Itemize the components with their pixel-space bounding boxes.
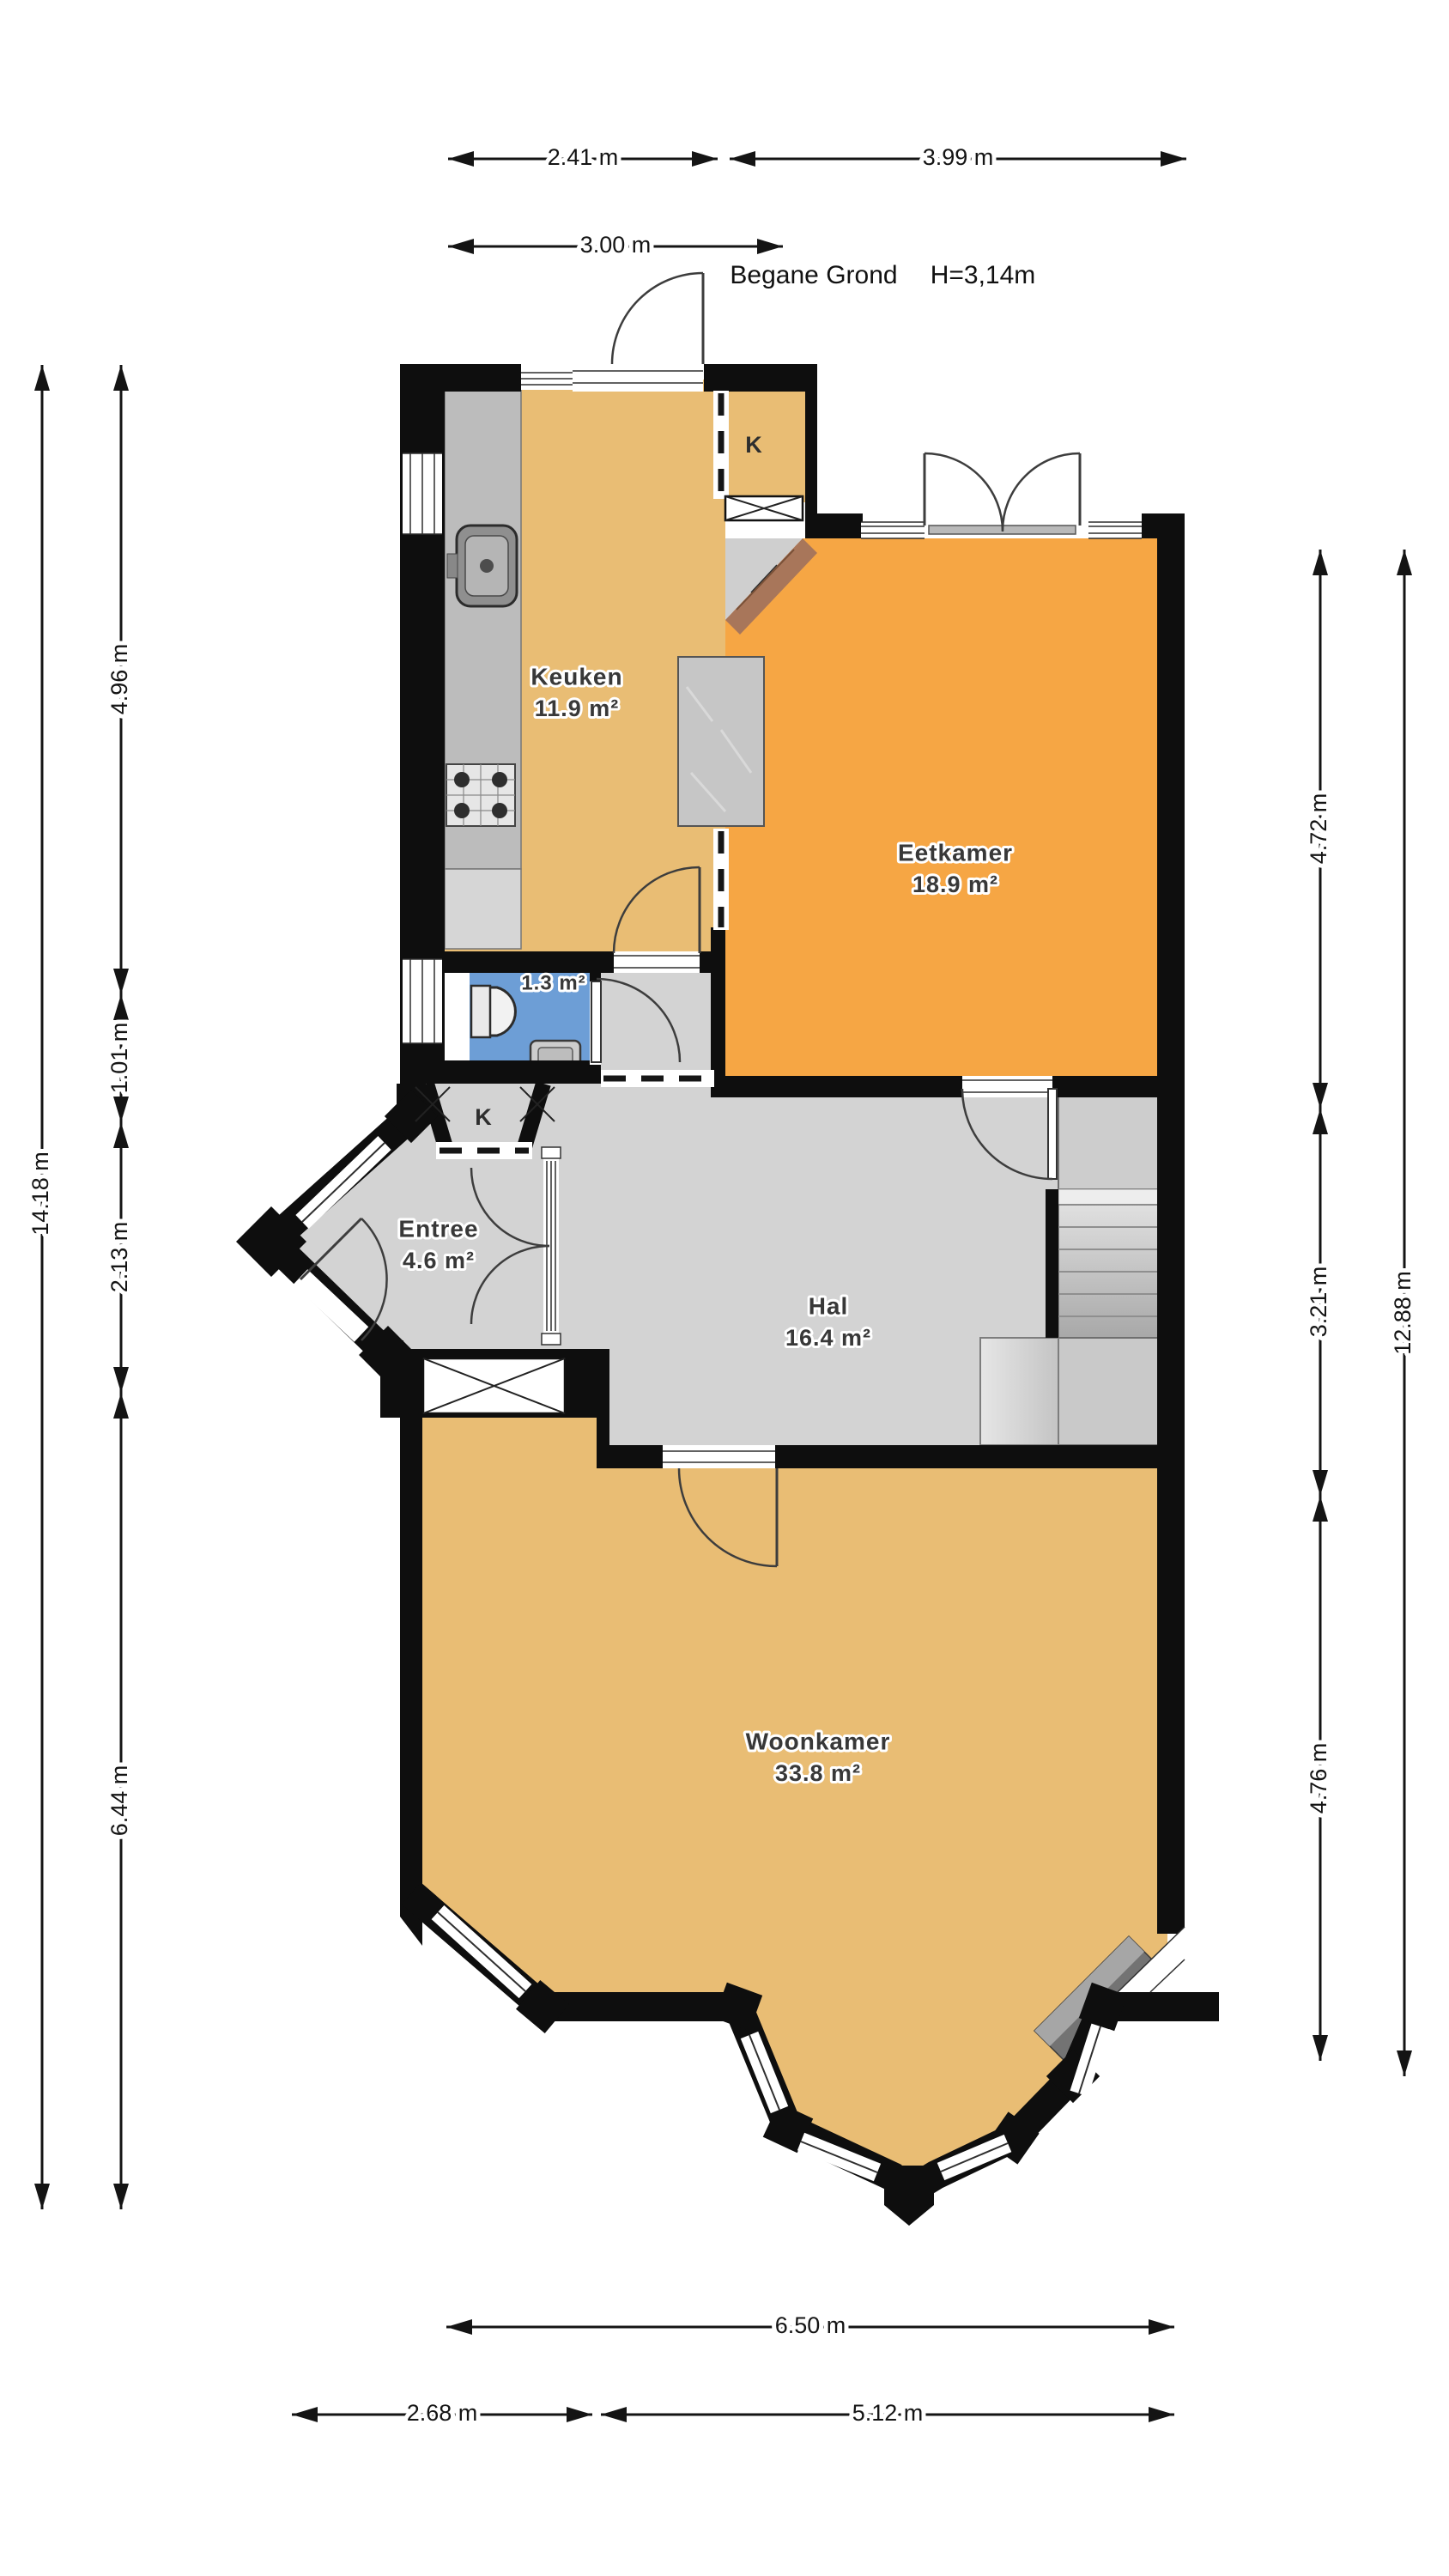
dim-label: 3.21 m [1306,1267,1331,1338]
wall [445,1060,601,1084]
sink-drain [480,559,494,573]
dim-label: 2.68 m [407,2400,478,2426]
wall-stair [1046,1189,1058,1338]
room-label-hal: Hal [809,1292,849,1319]
wall [704,364,817,392]
dim-label: 4.96 m [106,644,132,715]
stair-first-tread [1058,1189,1167,1205]
room-area-eetkamer: 18.9 m² [912,872,998,897]
french-door-arc [1003,453,1080,531]
wall-right [1157,513,1185,1934]
room-area-woonkamer: 33.8 m² [775,1760,861,1786]
burner [492,803,507,818]
room-label-eetkamer: Eetkamer [898,839,1013,866]
kast-keuken-floor [725,388,805,502]
dim-label: 2.13 m [106,1222,132,1293]
dim-label: 1.01 m [106,1023,132,1094]
room-area-hal: 16.4 m² [785,1325,871,1351]
room-label-keuken: Keuken [530,663,622,690]
window-eetkamer-left [861,522,925,538]
dim-label: 6.50 m [775,2312,846,2338]
door-jamb [542,1147,561,1158]
wall [445,951,614,973]
sink-faucet [447,554,458,578]
closet-label-1: K [745,432,762,458]
stair-lower-right [1058,1338,1167,1445]
burner [454,803,470,818]
dim-label: 2.41 m [548,144,619,170]
wall [775,1445,1159,1468]
room-area-entree: 4.6 m² [403,1248,475,1273]
dim-label: 12.88 m [1390,1271,1416,1355]
closet-label-2: K [475,1104,492,1130]
bay-prow-post [884,2166,934,2226]
title: Begane Grond H=3,14m [730,261,1035,289]
eetkamer-floor [725,538,1167,1087]
wall [1052,1076,1159,1097]
door-leaf-eetkamer-hal [1048,1089,1057,1179]
kitchen-island [678,657,764,826]
dim-label: 3.99 m [923,144,994,170]
floor-title: Begane Grond [730,261,897,289]
door-leaf-toilet [591,981,601,1062]
wall [805,513,863,538]
door-opening-keuken-hal [614,951,700,973]
door-opening-woonkamer [663,1445,775,1468]
room-label-woonkamer: Woonkamer [746,1728,891,1754]
room-label-entree: Entree [398,1215,478,1242]
wall-tip [400,1917,422,1946]
door-jamb [542,1334,561,1345]
kitchen-cabinet [445,869,521,949]
floor-plan-page: Keuken 11.9 m² Eetkamer 18.9 m² Hal 16.4… [0,0,1449,2576]
burner [492,772,507,787]
stair-upper-landing [1058,1084,1167,1189]
toilet-tank [471,986,490,1037]
wall [590,973,601,981]
french-door-arc [925,453,1003,532]
floor-plan: Keuken 11.9 m² Eetkamer 18.9 m² Hal 16.4… [0,0,1449,2576]
stair-lower-left [980,1338,1058,1445]
door-opening-kitchen-top [573,364,703,392]
door-arc-kitchen-top [612,273,703,364]
dim-label: 14.18 m [27,1151,53,1236]
dim-label: 5.12 m [852,2400,924,2426]
dim-label: 4.76 m [1306,1743,1331,1814]
door-opening-eetkamer-hal [962,1076,1052,1097]
room-area-keuken: 11.9 m² [535,696,620,721]
wall-left-lower [400,1418,422,1917]
burner [454,772,470,787]
ceiling-height: H=3,14m [931,261,1036,289]
dim-label: 4.72 m [1306,793,1331,865]
wall [725,1076,962,1097]
wall-kast-right [805,364,817,519]
window-eetkamer-right [1088,522,1142,538]
dim-label: 6.44 m [106,1765,132,1837]
wall [597,1418,609,1468]
dim-label: 3.00 m [580,232,652,258]
room-area-toilet: 1.3 m² [521,971,585,994]
